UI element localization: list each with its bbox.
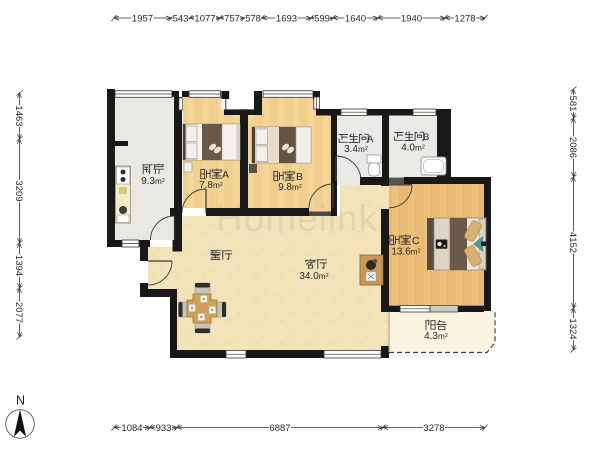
- svg-text:3209: 3209: [13, 180, 24, 201]
- svg-text:1693: 1693: [276, 13, 297, 24]
- svg-text:1077: 1077: [194, 13, 215, 24]
- svg-text:599: 599: [314, 13, 330, 24]
- svg-text:1463: 1463: [13, 105, 24, 126]
- svg-text:34.0m2: 34.0m2: [299, 271, 328, 282]
- svg-text:1640: 1640: [345, 13, 366, 24]
- svg-text:C: C: [412, 235, 420, 247]
- svg-text:9.3m2: 9.3m2: [141, 176, 165, 187]
- svg-text:581: 581: [567, 96, 578, 112]
- svg-text:2077: 2077: [13, 302, 24, 323]
- svg-text:4.0m2: 4.0m2: [401, 143, 425, 154]
- svg-text:1084: 1084: [121, 423, 142, 434]
- svg-text:7.8m2: 7.8m2: [199, 180, 223, 191]
- svg-text:2086: 2086: [567, 137, 578, 158]
- svg-text:6887: 6887: [269, 423, 290, 434]
- svg-text:A: A: [367, 134, 374, 145]
- svg-text:N: N: [16, 394, 25, 408]
- svg-text:543: 543: [173, 13, 189, 24]
- svg-text:757: 757: [224, 13, 240, 24]
- svg-text:1394: 1394: [13, 255, 24, 276]
- svg-text:933: 933: [156, 423, 172, 434]
- svg-text:1957: 1957: [132, 13, 153, 24]
- svg-text:1940: 1940: [401, 13, 422, 24]
- svg-text:B: B: [296, 171, 303, 183]
- svg-text:3278: 3278: [423, 423, 444, 434]
- svg-text:B: B: [423, 132, 429, 143]
- svg-text:13.6m2: 13.6m2: [391, 247, 420, 258]
- svg-text:4.3m2: 4.3m2: [424, 331, 448, 342]
- svg-text:1324: 1324: [567, 318, 578, 339]
- svg-text:4152: 4152: [567, 232, 578, 253]
- svg-text:3.4m2: 3.4m2: [344, 144, 368, 155]
- svg-text:1278: 1278: [454, 13, 475, 24]
- svg-text:578: 578: [245, 13, 261, 24]
- svg-text:A: A: [222, 169, 229, 181]
- svg-text:9.8m2: 9.8m2: [278, 182, 302, 193]
